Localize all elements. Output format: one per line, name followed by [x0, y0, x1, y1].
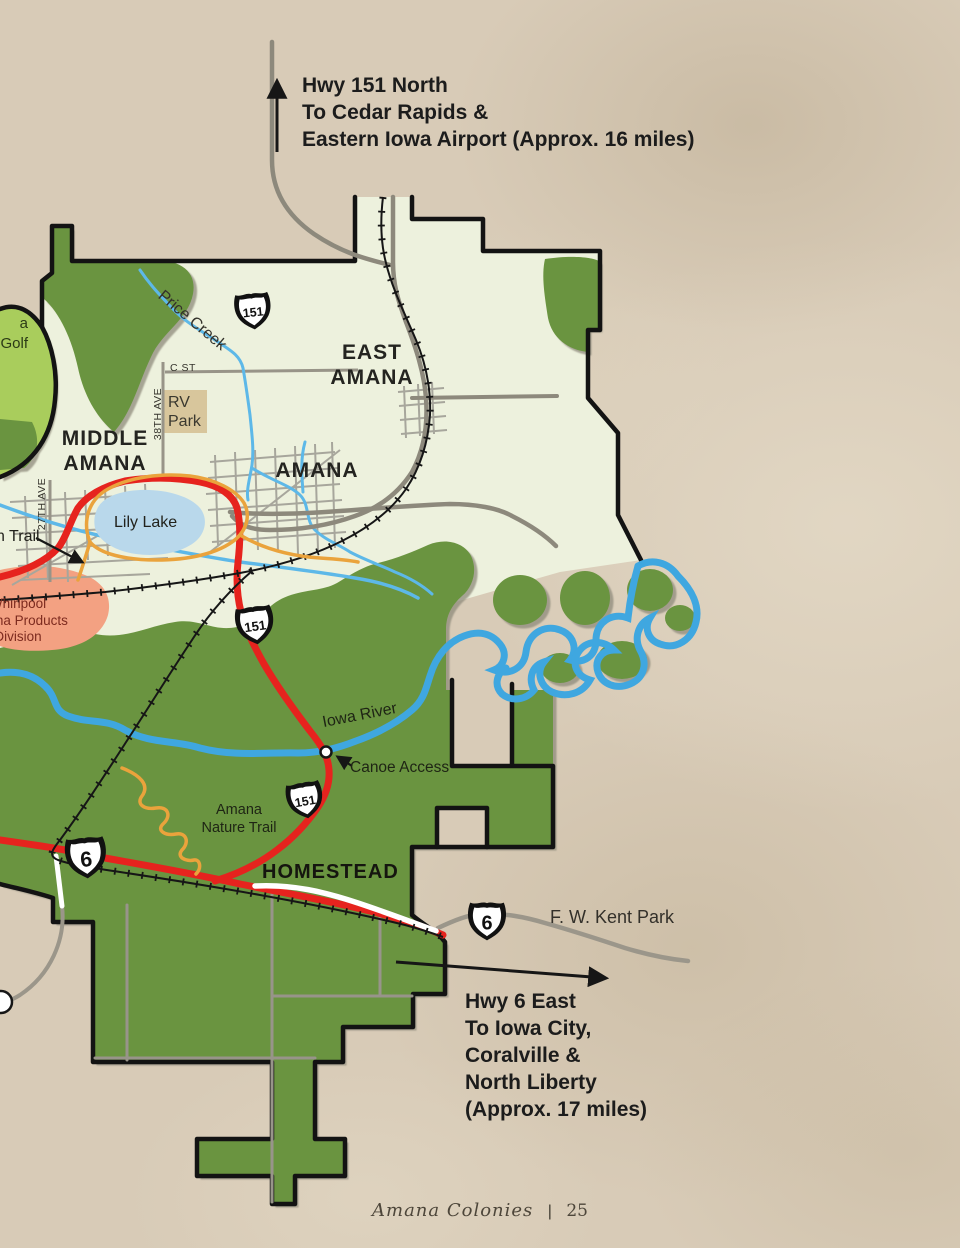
label-amana: AMANA — [247, 458, 387, 483]
label-27th-ave: 27TH AVE — [36, 478, 48, 530]
forest-meander-blob — [560, 571, 610, 625]
us-6-shield: 6 — [61, 834, 111, 881]
label-whirlpool: Whirlpool Amana Products Division — [0, 596, 96, 646]
footer-brand: Amana Colonies — [372, 1200, 533, 1221]
label-golf-cropped: a Golf — [0, 314, 28, 354]
svg-text:151: 151 — [242, 304, 264, 320]
us-151-shield: 151 — [282, 778, 328, 822]
svg-text:6: 6 — [79, 847, 93, 872]
svg-text:6: 6 — [481, 912, 492, 934]
footer-divider: | — [548, 1203, 552, 1220]
label-nature-trail: Amana Nature Trail — [177, 802, 301, 837]
cropped-route-shield — [0, 991, 12, 1013]
us-6-shield: 6 — [466, 901, 508, 941]
label-lily-lake: Lily Lake — [114, 514, 177, 532]
amana-colonies-map: Hwy 151 North To Cedar Rapids & Eastern … — [0, 0, 960, 1248]
canoe-access-marker — [321, 747, 332, 758]
forest-meander-blob — [493, 575, 547, 625]
label-38th-ave: 38TH AVE — [152, 388, 164, 440]
label-kent-park: F. W. Kent Park — [550, 907, 674, 928]
us-151-shield: 151 — [231, 290, 275, 332]
page-footer: Amana Colonies | 25 — [0, 1200, 960, 1221]
label-homestead: HOMESTEAD — [262, 861, 399, 884]
footer-page-number: 25 — [566, 1201, 588, 1221]
hwy6-east-note: Hwy 6 East To Iowa City, Coralville & No… — [465, 988, 647, 1123]
paper-pocket — [439, 810, 485, 845]
svg-text:151: 151 — [243, 617, 267, 635]
label-c-st: C ST — [170, 362, 196, 374]
forest-meander-blob — [665, 605, 695, 631]
label-rv-park: RV Park — [168, 393, 201, 431]
us-151-shield: 151 — [231, 602, 278, 647]
hwy151-north-note: Hwy 151 North To Cedar Rapids & Eastern … — [302, 72, 694, 153]
label-east-amana: EAST AMANA — [302, 340, 442, 390]
label-trail-cropped: n Trail — [0, 528, 40, 546]
label-canoe-access: Canoe Access — [350, 759, 449, 777]
